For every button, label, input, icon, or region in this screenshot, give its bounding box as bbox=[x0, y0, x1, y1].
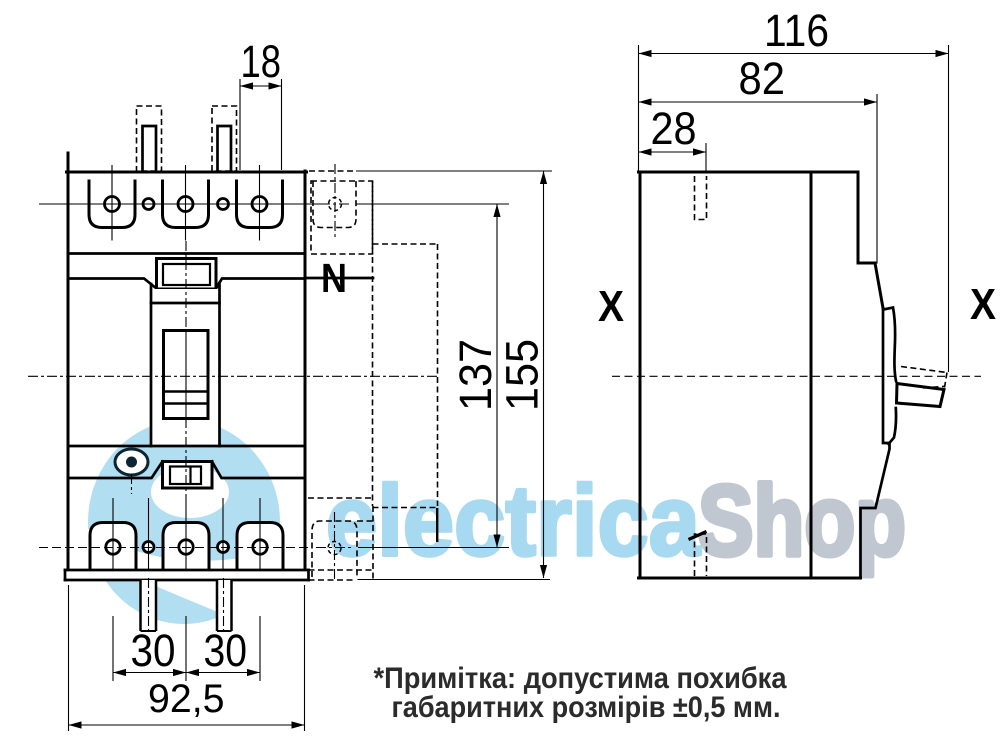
svg-text:X: X bbox=[598, 282, 624, 331]
svg-text:Shop: Shop bbox=[698, 465, 906, 577]
svg-text:N: N bbox=[321, 255, 347, 301]
svg-text:82: 82 bbox=[739, 53, 786, 104]
svg-text:155: 155 bbox=[497, 339, 548, 411]
svg-text:30: 30 bbox=[204, 625, 248, 676]
svg-text:28: 28 bbox=[651, 103, 697, 154]
svg-text:габаритних розмірів ±0,5 мм.: габаритних розмірів ±0,5 мм. bbox=[392, 691, 781, 724]
svg-text:92,5: 92,5 bbox=[148, 677, 225, 721]
svg-text:30: 30 bbox=[131, 625, 176, 676]
svg-text:X: X bbox=[970, 280, 996, 329]
svg-text:electrica: electrica bbox=[326, 465, 701, 577]
svg-text:18: 18 bbox=[241, 36, 282, 87]
svg-text:137: 137 bbox=[450, 339, 501, 411]
svg-text:116: 116 bbox=[764, 5, 829, 56]
